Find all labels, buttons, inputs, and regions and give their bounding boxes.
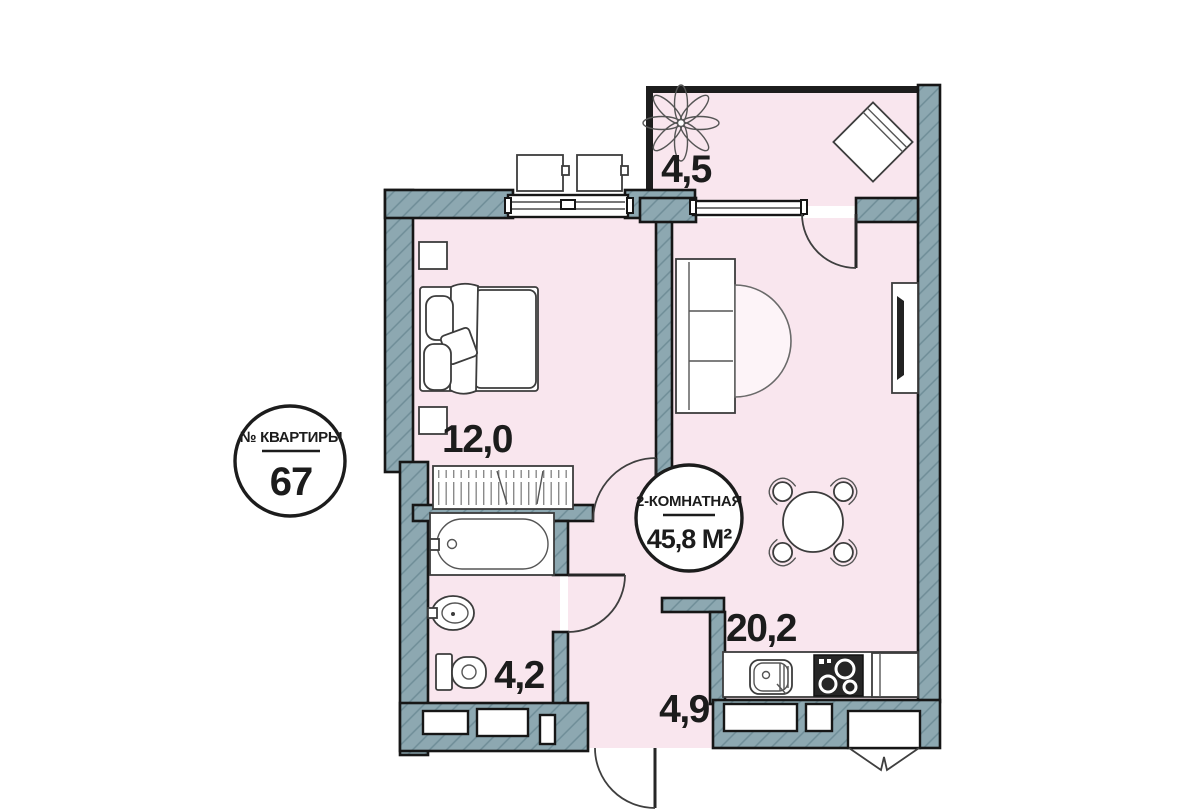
room-label-bathroom: 4,2 bbox=[494, 654, 545, 697]
balcony-window bbox=[690, 200, 807, 215]
fridge-icon bbox=[872, 653, 918, 697]
wall bbox=[640, 198, 696, 222]
balcony-glazing-left bbox=[646, 86, 653, 200]
floor-plan-drawing: 4,5 12,0 4,2 4,9 20,2 № КВАРТИРЫ 67 2-КО… bbox=[0, 0, 1179, 810]
sofa-icon bbox=[676, 259, 735, 413]
wall bbox=[385, 190, 513, 218]
entry-door bbox=[595, 748, 655, 808]
ac-unit-tab bbox=[621, 166, 628, 175]
tv-icon bbox=[897, 296, 904, 380]
room-label-kitchen-living: 20,2 bbox=[726, 607, 797, 650]
bathtub-icon bbox=[430, 513, 554, 575]
wall bbox=[553, 632, 568, 708]
shaft bbox=[724, 704, 797, 731]
kitchen-window bbox=[848, 711, 920, 770]
floor-plan: 4,5 12,0 4,2 4,9 20,2 № КВАРТИРЫ 67 2-КО… bbox=[0, 0, 1179, 810]
kitchen-sink-icon bbox=[750, 660, 792, 694]
wall bbox=[662, 598, 724, 612]
wall bbox=[856, 198, 918, 222]
shaft bbox=[540, 715, 555, 744]
info-badge-type: 2-КОМНАТНАЯ bbox=[636, 493, 742, 510]
apartment-number-badge: № КВАРТИРЫ 67 bbox=[235, 406, 345, 516]
stove-icon bbox=[814, 655, 863, 696]
tv-unit-icon bbox=[892, 283, 918, 393]
apartment-badge-number: 67 bbox=[270, 460, 313, 504]
apartment-badge-label: № КВАРТИРЫ bbox=[240, 429, 342, 446]
wall bbox=[918, 85, 940, 702]
ac-units bbox=[517, 155, 628, 191]
nightstand-icon bbox=[419, 242, 447, 269]
ac-unit-icon bbox=[577, 155, 622, 191]
ac-unit-icon bbox=[517, 155, 563, 191]
info-badge-area: 45,8 М² bbox=[647, 524, 733, 554]
room-label-bedroom: 12,0 bbox=[442, 418, 513, 461]
kitchen-counter bbox=[723, 652, 918, 697]
wall bbox=[385, 190, 413, 472]
shaft bbox=[477, 709, 528, 736]
room-label-hallway: 4,9 bbox=[659, 688, 710, 731]
apartment-info-badge: 2-КОМНАТНАЯ 45,8 М² bbox=[636, 465, 742, 571]
balcony-glazing-top bbox=[646, 86, 918, 93]
bedroom-window bbox=[505, 195, 633, 217]
wall bbox=[553, 521, 568, 575]
shaft bbox=[423, 711, 468, 734]
shaft bbox=[806, 704, 832, 731]
wardrobe-icon bbox=[433, 466, 573, 509]
room-label-balcony: 4,5 bbox=[661, 148, 712, 191]
toilet-icon bbox=[436, 654, 486, 690]
ac-unit-tab bbox=[562, 166, 569, 175]
bed-icon bbox=[420, 284, 538, 394]
